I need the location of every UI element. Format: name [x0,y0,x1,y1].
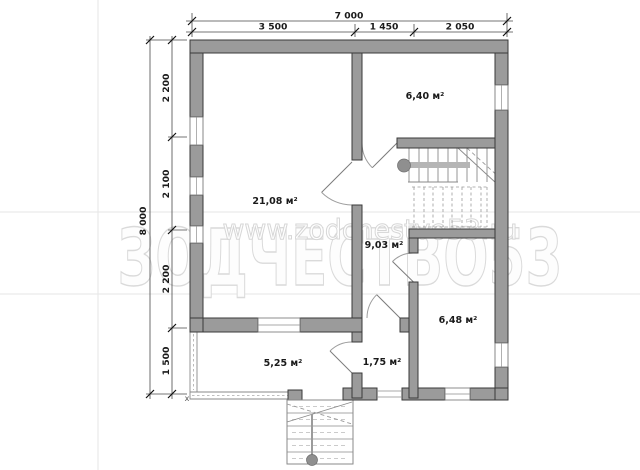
dim-top-segment-1: 3 500 [259,22,288,33]
entry-door-threshold [377,391,402,397]
dim-left-segment-3: 2 200 [161,265,172,294]
dim-top-segment-2: 1 450 [370,22,399,33]
dim-left-segment-2: 2 100 [161,170,172,199]
dim-total-height: 8 000 [138,207,149,236]
dim-left-segment-1: 2 200 [161,74,172,103]
steps-newel-post [307,455,318,466]
room-area-label-veranda: 5,25 м² [264,358,303,369]
stair-newel-post [398,159,411,172]
room-area-label-hall: 9,03 м² [365,240,404,251]
door-leaf [372,143,397,168]
room-area-label-entry: 1,75 м² [363,357,402,368]
dim-total-width: 7 000 [335,11,364,22]
entry-steps [287,400,353,466]
door-leaf [322,162,352,192]
steps-outline [287,400,353,464]
veranda-pier [288,390,302,400]
floor-plan-page: ЗОДЧЕСТВО53 www.zodchestvo53.ru [0,0,640,470]
door-room-top-right [362,143,397,168]
room-area-label-living: 21,08 м² [252,196,297,207]
stair-handrail [408,162,470,168]
door-leaf [330,351,352,373]
room-area-label-bottom-right: 6,48 м² [439,315,478,326]
door-veranda-to-entry [330,342,352,373]
door-arc [330,342,352,351]
dim-top-segment-3: 2 050 [446,22,475,33]
door-living-room [322,162,352,205]
door-arc [322,192,352,205]
veranda-corner-mark: х [185,394,190,403]
floor-plan-drawing: ЗОДЧЕСТВО53 www.zodchestvo53.ru [0,0,640,470]
door-arc [362,143,372,168]
dimension-top: 7 000 3 500 1 450 2 050 [186,11,513,38]
room-area-label-top-right: 6,40 м² [406,91,445,102]
dim-left-segment-4: 1 500 [161,347,172,376]
